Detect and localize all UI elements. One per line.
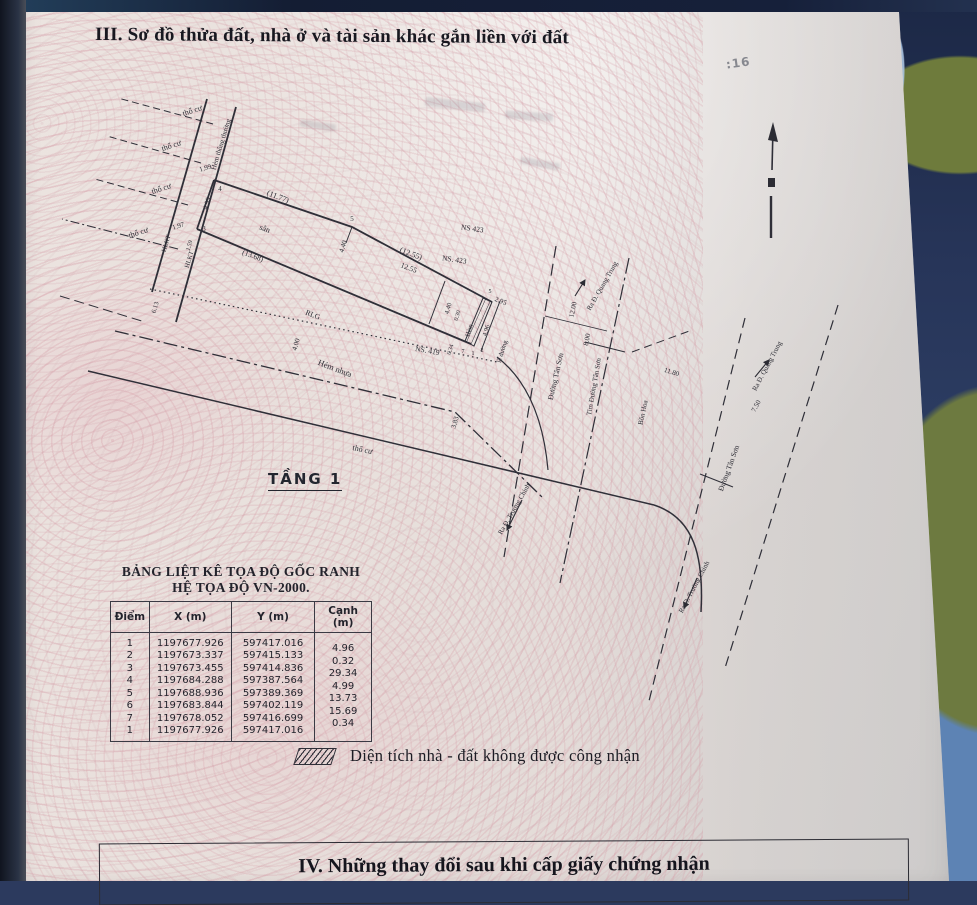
- map-label: thổ cư: [127, 225, 150, 240]
- map-label: NS. 423: [442, 253, 468, 265]
- map-label: 7: [462, 349, 465, 355]
- map-label: 4.40: [444, 302, 454, 315]
- hatched-area-icon: [293, 748, 337, 765]
- legend: Diện tích nhà - đất không được công nhận: [296, 746, 640, 766]
- map-label: 12.55: [399, 260, 418, 275]
- map-label: 8.00: [582, 332, 592, 346]
- map-label: 4: [218, 185, 222, 193]
- map-label: 5: [489, 289, 492, 295]
- legend-text: Diện tích nhà - đất không được công nhận: [350, 746, 640, 766]
- map-label: 0.34: [447, 344, 456, 356]
- map-label: 3.83: [449, 415, 460, 430]
- col-header-diem: Điểm: [111, 602, 150, 633]
- map-label: 2: [481, 348, 484, 354]
- map-label: 0.30: [454, 310, 463, 322]
- map-label: NS 423: [460, 222, 484, 234]
- map-label: RLG: [304, 308, 322, 322]
- map-label: Hẻm nhựa: [317, 357, 354, 379]
- north-arrow-icon: [768, 122, 778, 238]
- map-label: thổ cư: [160, 138, 183, 153]
- map-label: 7.50: [750, 398, 763, 413]
- neighbour-boundaries: [60, 98, 213, 322]
- table-title-line2: HỆ TỌA ĐỘ VN-2000.: [110, 580, 372, 596]
- map-labels: thổ cưthổ cưthổ cưthổ cưHẻm thông thường…: [127, 103, 784, 614]
- col-header-canh: Cạnh (m): [315, 602, 372, 633]
- map-label: lề đường: [496, 339, 510, 364]
- floor-label: TẦNG 1: [268, 470, 342, 491]
- map-label: 3: [202, 225, 206, 233]
- unrecognized-area-hatch: [465, 298, 492, 346]
- parcel-outline: [197, 180, 500, 351]
- map-label: thổ cư: [352, 443, 374, 456]
- direction-arrows: [507, 280, 769, 608]
- table-row: 11197677.926597417.0160.34: [111, 725, 372, 742]
- coordinate-table: Điểm X (m) Y (m) Cạnh (m) 11197677.92659…: [110, 601, 372, 742]
- table-title-line1: BẢNG LIỆT KÊ TỌA ĐỘ GỐC RANH: [110, 564, 372, 580]
- map-label: Ra Đ. Trường Chinh: [496, 482, 532, 536]
- map-label: sân: [258, 223, 271, 235]
- map-label: Ra Đ. Quang Trung: [751, 339, 784, 392]
- map-label: 1.97: [171, 220, 186, 232]
- map-label: 1.59: [186, 240, 195, 252]
- map-label: 4.00: [290, 337, 301, 352]
- table-header-row: Điểm X (m) Y (m) Cạnh (m): [111, 602, 372, 633]
- photographed-land-certificate-page: { "page": { "section_iii_title": "III. S…: [0, 0, 977, 881]
- map-label: thổ cư: [181, 103, 204, 118]
- map-label: HLKT: [161, 234, 173, 253]
- table-title: BẢNG LIỆT KÊ TỌA ĐỘ GỐC RANH HỆ TỌA ĐỘ V…: [110, 564, 372, 596]
- far-street-lines: [632, 305, 838, 705]
- map-label: 11.80: [663, 366, 681, 379]
- map-label: thổ cư: [150, 181, 173, 196]
- col-header-y: Y (m): [231, 602, 314, 633]
- section-iv-box: IV. Những thay đổi sau khi cấp giấy chứn…: [99, 839, 909, 905]
- tan-son-street-lines: [504, 246, 629, 583]
- map-label: Ra Đ. Quang Trung: [585, 260, 620, 312]
- map-label: Đường Tân Sơn: [546, 352, 566, 401]
- map-label: 12.00: [567, 301, 578, 319]
- map-label: NS. 419: [415, 344, 441, 357]
- map-label: Tim Đường Tân Sơn: [585, 357, 603, 416]
- section-iv-title: IV. Những thay đổi sau khi cấp giấy chứn…: [100, 852, 908, 880]
- coordinate-table-block: BẢNG LIỆT KÊ TỌA ĐỘ GỐC RANH HỆ TỌA ĐỘ V…: [110, 564, 372, 742]
- map-label: 1: [472, 351, 475, 357]
- col-header-x: X (m): [149, 602, 231, 633]
- map-label: 6.13: [151, 301, 161, 314]
- map-label: 5: [350, 215, 354, 223]
- map-label: Bồn Hoa: [637, 399, 650, 426]
- map-label: (13.68): [241, 248, 265, 264]
- map-label: 2.95: [494, 295, 509, 307]
